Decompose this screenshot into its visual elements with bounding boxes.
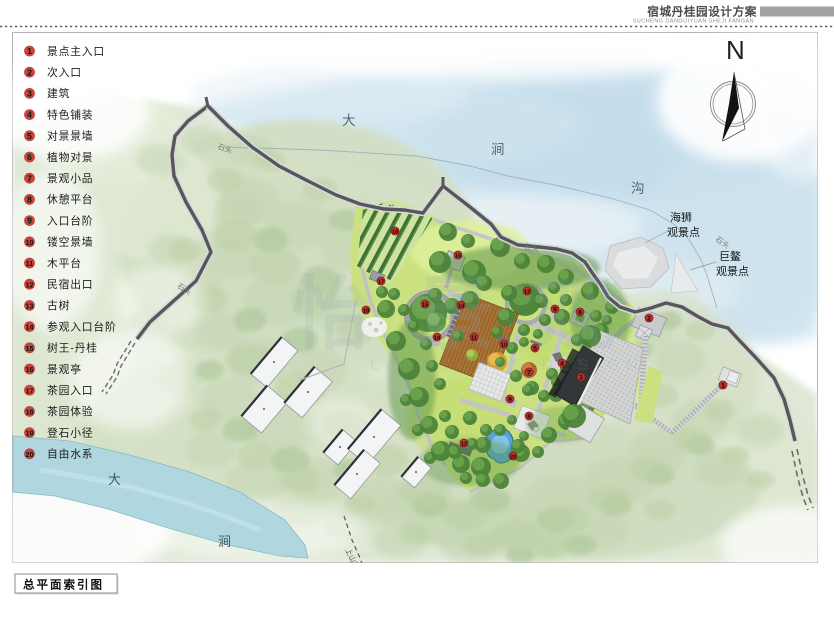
svg-text:16: 16 — [455, 253, 461, 259]
svg-text:茶园入口: 茶园入口 — [47, 384, 93, 397]
svg-text:对景景墙: 对景景墙 — [47, 129, 93, 143]
svg-text:自由水系: 自由水系 — [47, 447, 93, 461]
svg-text:17: 17 — [26, 386, 34, 395]
svg-text:树王-丹桂: 树王-丹桂 — [47, 341, 98, 355]
svg-text:古树: 古树 — [47, 298, 70, 312]
svg-text:镂空景墙: 镂空景墙 — [47, 235, 93, 249]
svg-text:12: 12 — [461, 441, 467, 447]
svg-text:15: 15 — [422, 302, 428, 308]
svg-text:16: 16 — [26, 365, 34, 374]
svg-text:2: 2 — [27, 67, 32, 77]
svg-text:9: 9 — [508, 396, 512, 403]
svg-text:3: 3 — [579, 374, 583, 381]
svg-text:4: 4 — [27, 110, 32, 120]
svg-text:13: 13 — [26, 302, 34, 311]
svg-text:19: 19 — [363, 308, 369, 314]
svg-text:木平台: 木平台 — [47, 256, 82, 270]
svg-text:沟: 沟 — [631, 181, 645, 196]
svg-text:19: 19 — [26, 429, 34, 438]
svg-text:宿城丹桂园设计方案: 宿城丹桂园设计方案 — [647, 5, 757, 19]
svg-text:涧: 涧 — [218, 534, 231, 549]
svg-text:涧: 涧 — [491, 142, 505, 157]
svg-text:观景点: 观景点 — [667, 226, 700, 239]
svg-text:9: 9 — [27, 216, 32, 226]
svg-text:13: 13 — [524, 289, 530, 295]
svg-text:次入口: 次入口 — [47, 65, 82, 79]
svg-text:总平面索引图: 总平面索引图 — [23, 578, 104, 592]
svg-text:6: 6 — [27, 152, 32, 162]
svg-text:大: 大 — [108, 472, 121, 487]
svg-text:10: 10 — [26, 238, 34, 247]
svg-text:12: 12 — [26, 280, 34, 289]
svg-text:17: 17 — [378, 279, 384, 285]
svg-text:登石小径: 登石小径 — [47, 425, 93, 439]
svg-text:怡景观: 怡景观 — [292, 270, 658, 359]
svg-text:14: 14 — [26, 323, 34, 332]
svg-text:4: 4 — [560, 360, 564, 367]
svg-text:10: 10 — [501, 342, 507, 348]
svg-text:7: 7 — [527, 369, 531, 376]
svg-text:18: 18 — [26, 408, 34, 417]
svg-text:民宿出口: 民宿出口 — [47, 277, 93, 291]
svg-text:11: 11 — [26, 259, 34, 268]
svg-text:景观亭: 景观亭 — [47, 362, 82, 376]
svg-text:巨鳌: 巨鳌 — [719, 249, 741, 263]
svg-text:20: 20 — [26, 450, 34, 459]
svg-text:建筑: 建筑 — [47, 86, 70, 100]
svg-text:海狮: 海狮 — [670, 210, 692, 224]
svg-text:20: 20 — [510, 454, 516, 460]
svg-text:入口台阶: 入口台阶 — [47, 213, 93, 227]
svg-text:9: 9 — [553, 306, 557, 313]
svg-text:3: 3 — [27, 89, 32, 99]
svg-text:6: 6 — [578, 309, 582, 316]
svg-text:8: 8 — [527, 413, 531, 420]
svg-text:1: 1 — [721, 382, 725, 389]
svg-text:SUCHENG DANGUIYUAN SHEJI FANGA: SUCHENG DANGUIYUAN SHEJI FANGAN — [633, 19, 754, 25]
svg-text:2: 2 — [647, 315, 651, 322]
svg-text:5: 5 — [533, 345, 537, 352]
svg-text:观景点: 观景点 — [716, 265, 749, 278]
svg-text:14: 14 — [434, 335, 441, 341]
svg-text:特色铺装: 特色铺装 — [47, 107, 93, 121]
svg-text:5: 5 — [27, 131, 32, 141]
svg-text:1: 1 — [27, 46, 32, 56]
svg-text:14: 14 — [458, 303, 465, 309]
svg-text:8: 8 — [27, 195, 32, 205]
svg-text:15: 15 — [26, 344, 34, 353]
svg-text:11: 11 — [471, 335, 477, 341]
svg-text:7: 7 — [27, 173, 32, 183]
svg-text:参观入口台阶: 参观入口台阶 — [47, 319, 117, 333]
svg-text:18: 18 — [392, 229, 398, 235]
svg-text:植物对景: 植物对景 — [47, 150, 93, 164]
svg-text:茶园体验: 茶园体验 — [47, 404, 93, 418]
svg-text:大: 大 — [342, 113, 356, 128]
svg-text:休憩平台: 休憩平台 — [47, 192, 93, 206]
svg-text:N: N — [726, 35, 745, 65]
svg-text:LANDSCAPE DESIGN: LANDSCAPE DESIGN — [370, 357, 645, 374]
svg-text:景观小品: 景观小品 — [47, 172, 93, 185]
svg-text:景点主入口: 景点主入口 — [47, 45, 105, 58]
